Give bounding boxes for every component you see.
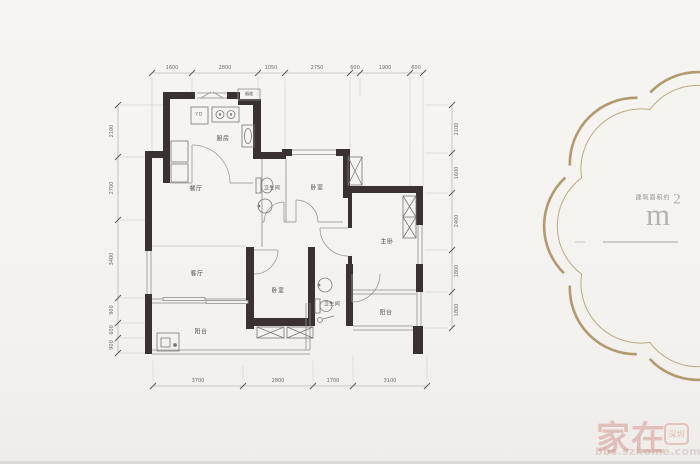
watermark-city-badge: 深圳 [664,423,689,445]
dim-left-0: 2100 [109,125,115,138]
emblem-unit-sup2: 2 [673,192,681,209]
dim-bottom-0: 3700 [192,378,205,384]
dim-top-4: 600 [350,65,360,71]
dim-bottom-1: 2800 [272,378,285,384]
appliance-label-yd: YD [195,113,202,118]
dim-bottom-3: 3100 [384,378,397,384]
dim-left-1: 2700 [109,182,115,195]
dim-top-2: 1050 [265,65,278,71]
room-label-kitchen: 厨房 [216,134,229,143]
emblem-unit-m: m [646,197,670,233]
dim-top-1: 2800 [219,65,232,71]
room-label-flue: 烟道 [245,91,253,97]
room-label-bath1: 卫生间 [264,185,281,192]
dim-top-0: 1600 [166,65,179,71]
emblem-flower-outline [544,72,700,380]
dim-right-3: 1800 [454,265,460,278]
dim-left-2: 3400 [109,253,115,266]
dim-right-2: 2400 [454,215,460,228]
room-label-bath2: 卫生间 [324,301,341,308]
room-label-master: 主卧 [380,237,393,246]
watermark-site-url: bbs.szhome.com [595,446,700,458]
dim-left-4: 600 [109,325,115,335]
room-label-balcony2: 阳台 [379,308,392,317]
dim-left-3: 900 [109,305,115,315]
dim-right-4: 1800 [454,304,460,317]
room-label-dining: 餐厅 [189,184,202,193]
dim-right-1: 1600 [454,167,460,180]
dim-bottom-2: 1700 [327,378,340,384]
dim-top-6: 600 [411,65,421,71]
dim-left-5: 900 [109,340,115,350]
room-label-balcony1: 阳台 [194,327,207,336]
room-label-bed2: 卧室 [271,286,284,295]
dim-top-3: 2750 [311,65,324,71]
floorplan-image: 厨房 餐厅 卫生间 卧室 主卧 客厅 卧室 卫生间 阳台 阳台 烟道 YD 16… [0,0,700,464]
dim-top-5: 1900 [379,65,392,71]
fixtures [157,107,416,351]
room-label-bed1: 卧室 [310,183,323,192]
dim-right-0: 2100 [454,123,460,136]
room-label-living: 客厅 [190,269,203,278]
